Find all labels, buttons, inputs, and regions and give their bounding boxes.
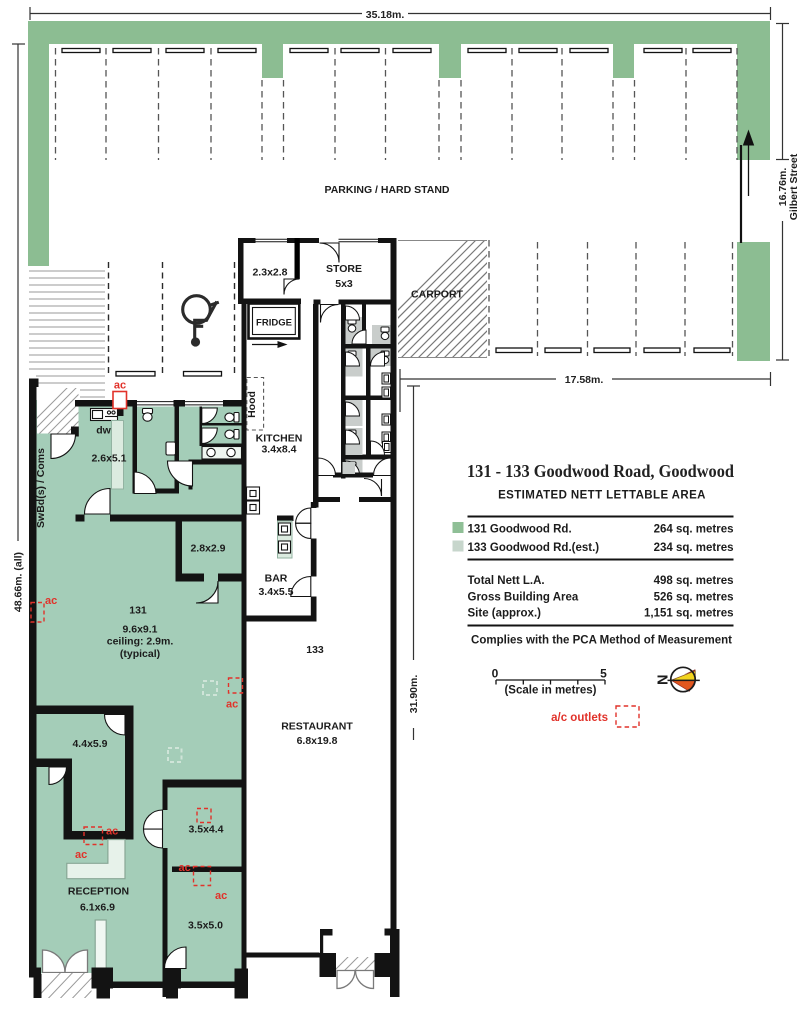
svg-text:498 sq. metres: 498 sq. metres bbox=[654, 575, 734, 587]
svg-text:5: 5 bbox=[600, 667, 607, 681]
svg-text:4.4x5.9: 4.4x5.9 bbox=[72, 738, 107, 750]
svg-text:2.3x2.8: 2.3x2.8 bbox=[252, 267, 287, 279]
svg-text:0: 0 bbox=[492, 667, 499, 681]
svg-text:SwBd(s) / Coms: SwBd(s) / Coms bbox=[35, 448, 47, 528]
svg-text:PARKING / HARD STAND: PARKING / HARD STAND bbox=[324, 184, 449, 196]
svg-text:48.66m. (all): 48.66m. (all) bbox=[13, 552, 25, 612]
svg-text:ac: ac bbox=[75, 849, 87, 861]
svg-text:ac: ac bbox=[215, 890, 227, 902]
svg-text:Gross Building Area: Gross Building Area bbox=[468, 592, 579, 604]
svg-text:264 sq. metres: 264 sq. metres bbox=[654, 524, 734, 536]
svg-text:ac: ac bbox=[106, 826, 118, 838]
svg-text:Gilbert Street: Gilbert Street bbox=[788, 153, 800, 220]
svg-text:3.5x5.0: 3.5x5.0 bbox=[188, 920, 223, 932]
svg-text:STORE: STORE bbox=[326, 263, 362, 275]
svg-text:ESTIMATED NETT LETTABLE AREA: ESTIMATED NETT LETTABLE AREA bbox=[498, 490, 706, 502]
svg-text:RESTAURANT: RESTAURANT bbox=[281, 721, 353, 733]
svg-text:234 sq. metres: 234 sq. metres bbox=[654, 542, 734, 554]
svg-text:131: 131 bbox=[129, 605, 147, 617]
svg-text:31.90m.: 31.90m. bbox=[408, 675, 420, 714]
svg-text:(Scale in metres): (Scale in metres) bbox=[504, 685, 596, 697]
svg-text:2.8x2.9: 2.8x2.9 bbox=[190, 543, 225, 555]
svg-text:133: 133 bbox=[306, 644, 324, 656]
svg-text:ac: ac bbox=[226, 699, 238, 711]
svg-text:ac: ac bbox=[45, 595, 57, 607]
svg-text:526 sq. metres: 526 sq. metres bbox=[654, 592, 734, 604]
svg-text:FRIDGE: FRIDGE bbox=[256, 318, 292, 329]
svg-text:RECEPTION: RECEPTION bbox=[68, 886, 129, 898]
svg-text:6.1x6.9: 6.1x6.9 bbox=[80, 902, 115, 914]
svg-text:Site (approx.): Site (approx.) bbox=[468, 608, 542, 620]
svg-text:133 Goodwood Rd.(est.): 133 Goodwood Rd.(est.) bbox=[468, 542, 600, 554]
svg-text:Complies with the PCA Method o: Complies with the PCA Method of Measurem… bbox=[471, 635, 732, 647]
svg-text:dw: dw bbox=[96, 425, 111, 437]
svg-text:131 - 133 Goodwood Road, Goodw: 131 - 133 Goodwood Road, Goodwood bbox=[467, 461, 734, 481]
svg-text:Total Nett L.A.: Total Nett L.A. bbox=[468, 575, 545, 587]
svg-text:5x3: 5x3 bbox=[335, 278, 353, 290]
svg-text:(typical): (typical) bbox=[120, 648, 160, 660]
svg-text:ac: ac bbox=[114, 380, 126, 392]
svg-text:ac: ac bbox=[179, 862, 191, 874]
svg-text:6.8x19.8: 6.8x19.8 bbox=[297, 735, 338, 747]
svg-text:CARPORT: CARPORT bbox=[411, 289, 464, 301]
svg-text:3.4x8.4: 3.4x8.4 bbox=[261, 444, 296, 456]
svg-text:3.4x5.5: 3.4x5.5 bbox=[258, 586, 293, 598]
svg-text:BAR: BAR bbox=[265, 573, 288, 585]
svg-text:N: N bbox=[654, 675, 670, 685]
svg-text:1,151 sq. metres: 1,151 sq. metres bbox=[644, 608, 734, 620]
svg-text:35.18m.: 35.18m. bbox=[366, 9, 405, 21]
svg-text:17.58m.: 17.58m. bbox=[565, 374, 604, 386]
svg-text:131 Goodwood Rd.: 131 Goodwood Rd. bbox=[468, 524, 572, 536]
svg-text:Hood: Hood bbox=[246, 391, 258, 418]
svg-text:a/c outlets: a/c outlets bbox=[551, 712, 608, 724]
svg-text:9.6x9.1: 9.6x9.1 bbox=[122, 624, 157, 636]
svg-text:ceiling: 2.9m.: ceiling: 2.9m. bbox=[107, 636, 174, 648]
svg-text:3.5x4.4: 3.5x4.4 bbox=[188, 824, 223, 836]
svg-text:2.6x5.1: 2.6x5.1 bbox=[91, 453, 126, 465]
